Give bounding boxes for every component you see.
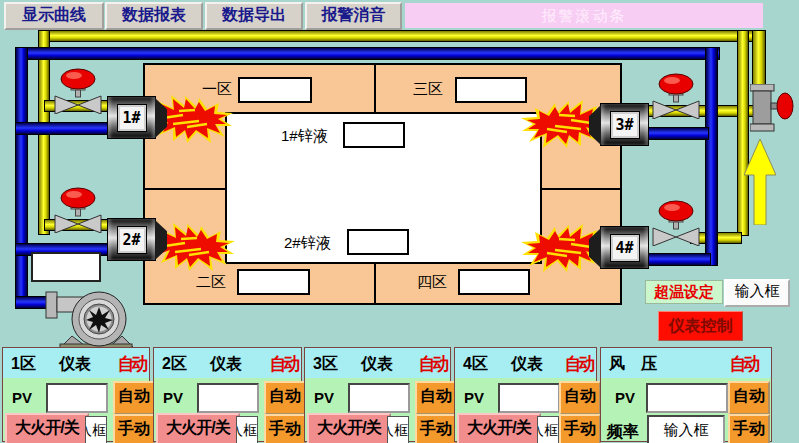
zone3-manual-button[interactable]: 手动 — [415, 414, 457, 443]
air-pipe-burner3 — [647, 127, 709, 140]
valve-icon-burner4 — [650, 200, 702, 246]
air-pipe-burner4 — [647, 253, 711, 266]
valve-icon-burner3 — [650, 73, 702, 119]
main-gas-valve-icon — [750, 84, 794, 136]
burner-3: 3# — [600, 103, 649, 146]
overtemp-input-button[interactable]: 输入框 — [724, 279, 790, 307]
burner-2-tag: 2# — [117, 226, 147, 254]
zinc2-value-box — [347, 229, 409, 255]
fan-manual-button[interactable]: 手动 — [728, 414, 770, 443]
zone1-fire-input[interactable]: 输入框 — [85, 416, 107, 443]
zone1-value-box — [238, 77, 312, 103]
data-export-button[interactable]: 数据导出 — [205, 2, 303, 30]
zone1-pv-label: PV — [12, 389, 32, 406]
flow-arrow-up-icon — [744, 139, 776, 225]
gas-pipe-top — [38, 30, 765, 42]
data-report-button[interactable]: 数据报表 — [105, 2, 203, 30]
instrument-control-button[interactable]: 仪表控制 — [658, 311, 743, 341]
zone2-auto-button[interactable]: 自动 — [264, 381, 306, 415]
fan-label: 风 — [609, 354, 625, 375]
blower-fan-icon — [42, 286, 137, 348]
zone4-pv-label: PV — [464, 389, 484, 406]
zone-divider-right — [540, 188, 620, 190]
zone1-mode-status: 自动 — [117, 352, 145, 376]
burner-2: 2# — [107, 218, 156, 261]
air-pipe-top — [15, 47, 720, 60]
zone4-mode-status: 自动 — [564, 352, 592, 376]
zone2-panel-title: 2区 — [162, 354, 187, 375]
fan-mode-status: 自动 — [729, 352, 757, 376]
zinc1-label: 1#锌液 — [281, 127, 328, 146]
zone1-pv-value — [46, 383, 108, 413]
zone1-auto-button[interactable]: 自动 — [113, 381, 155, 415]
zone2-panel: 2区 仪表 自动 PV 自动 大火开/关 输入框 手动 — [153, 347, 302, 442]
zone4-panel-title: 4区 — [463, 354, 488, 375]
burner-1: 1# — [107, 96, 156, 139]
fan-auto-button[interactable]: 自动 — [728, 381, 770, 415]
zone3-panel-title: 3区 — [313, 354, 338, 375]
valve-icon-burner1 — [52, 68, 104, 114]
zone4-pv-value — [498, 383, 560, 413]
zone2-value-box — [237, 269, 310, 295]
overtemp-setting-label: 超温设定 — [645, 280, 723, 304]
frequency-label: 频率 — [607, 422, 639, 443]
zone-divider-top — [374, 65, 376, 114]
zone3-auto-button[interactable]: 自动 — [415, 381, 457, 415]
alarm-mute-button[interactable]: 报警消音 — [305, 2, 402, 30]
zone4-manual-button[interactable]: 手动 — [559, 414, 601, 443]
zone3-pv-label: PV — [314, 389, 334, 406]
zone2-manual-button[interactable]: 手动 — [264, 414, 306, 443]
zone3-value-box — [455, 77, 527, 103]
zone2-meter-label: 仪表 — [210, 354, 242, 375]
fan-pv-value — [646, 383, 728, 413]
fan-pv-label: PV — [615, 389, 635, 406]
show-curve-button[interactable]: 显示曲线 — [4, 2, 104, 30]
zone-divider-bottom — [374, 262, 376, 303]
burner-4-tag: 4# — [610, 234, 640, 262]
burner-3-tag: 3# — [610, 111, 640, 139]
left-display-box — [31, 252, 101, 282]
zone2-mode-status: 自动 — [269, 352, 297, 376]
zone4-fire-toggle-button[interactable]: 大火开/关 — [457, 413, 541, 443]
zone3-pv-value — [348, 383, 410, 413]
zone3-fire-input[interactable]: 输入框 — [387, 416, 409, 443]
zone2-fire-input[interactable]: 输入框 — [236, 416, 258, 443]
zone1-manual-button[interactable]: 手动 — [113, 414, 155, 443]
zone4-label: 四区 — [417, 273, 447, 292]
air-pipe-left — [15, 47, 28, 309]
zone2-pv-value — [197, 383, 259, 413]
zone1-meter-label: 仪表 — [59, 354, 91, 375]
zone2-label: 二区 — [196, 273, 226, 292]
pressure-label: 压 — [641, 354, 657, 375]
air-pipe-right — [705, 47, 718, 266]
zone2-fire-toggle-button[interactable]: 大火开/关 — [156, 413, 240, 443]
zinc1-value-box — [343, 122, 405, 148]
zone1-panel: 1区 仪表 自动 PV 自动 大火开/关 输入框 手动 — [2, 347, 150, 442]
fan-pressure-panel: 风 压 自动 PV 自动 频率 输入框 手动 — [600, 347, 772, 442]
frequency-input[interactable]: 输入框 — [647, 415, 725, 443]
zone3-label: 三区 — [413, 80, 443, 99]
zone3-meter-label: 仪表 — [361, 354, 393, 375]
zinc2-label: 2#锌液 — [284, 234, 331, 253]
gas-pipe-right-outer — [752, 30, 766, 89]
zone4-fire-input[interactable]: 输入框 — [537, 416, 559, 443]
valve-icon-burner2 — [52, 187, 104, 233]
alarm-scroll-bar: 报警滚动条 — [405, 3, 763, 28]
hmi-screen: 显示曲线 数据报表 数据导出 报警消音 报警滚动条 一区 三区 二区 四区 1#… — [0, 0, 799, 443]
zone3-mode-status: 自动 — [418, 352, 446, 376]
zone2-pv-label: PV — [163, 389, 183, 406]
zone-divider-left — [145, 188, 227, 190]
zone3-panel: 3区 仪表 自动 PV 自动 大火开/关 输入框 手动 — [304, 347, 451, 442]
burner-1-tag: 1# — [117, 104, 147, 132]
zone4-auto-button[interactable]: 自动 — [559, 381, 601, 415]
burner-4: 4# — [600, 226, 649, 269]
zone3-fire-toggle-button[interactable]: 大火开/关 — [307, 413, 391, 443]
zone4-meter-label: 仪表 — [511, 354, 543, 375]
air-pipe-burner1 — [15, 122, 113, 135]
zone4-panel: 4区 仪表 自动 PV 自动 大火开/关 输入框 手动 — [454, 347, 597, 442]
zone1-fire-toggle-button[interactable]: 大火开/关 — [5, 413, 89, 443]
zone1-panel-title: 1区 — [11, 354, 36, 375]
